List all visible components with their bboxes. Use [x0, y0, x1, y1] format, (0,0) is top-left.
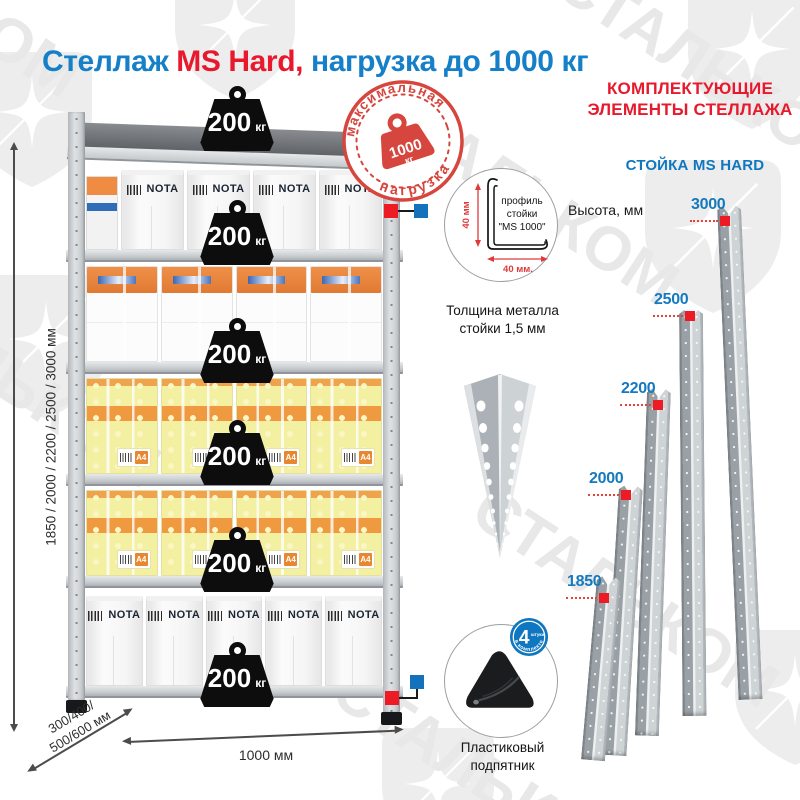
paper-pack-box: A4 [310, 378, 382, 474]
components-heading: КОМПЛЕКТУЮЩИЕЭЛЕМЕНТЫ СТЕЛЛАЖА [580, 78, 800, 121]
a4-label: A4 [118, 449, 150, 466]
foot-marker-blue-square [410, 675, 424, 689]
profile-dim-vertical: 40 мм [461, 201, 472, 228]
dotted-leader-line [588, 494, 619, 496]
foot-marker-red-square [385, 691, 399, 705]
height-axis-label: Высота, мм [568, 202, 643, 218]
post-height-value: 3000 [691, 197, 730, 213]
orange-lid-box [310, 266, 382, 362]
brand-label: NOTA [168, 610, 200, 621]
a4-badge: A4 [359, 451, 372, 464]
post-height-label-3000: 3000 [690, 197, 730, 226]
post-height-value: 2200 [621, 381, 663, 397]
box-label [248, 276, 286, 284]
load-unit: кг [255, 454, 266, 468]
barcode-icon [148, 611, 163, 621]
badge-word: штуки [531, 632, 545, 637]
box-lid [87, 267, 157, 293]
load-unit: кг [255, 561, 266, 575]
red-square-marker [653, 400, 663, 410]
foot-marker-connector-v [416, 688, 418, 699]
weight-body-icon: 200кг [198, 433, 276, 485]
box-lid [311, 267, 381, 293]
barcode-icon [259, 185, 274, 195]
count-badge: 4 штуки в комплекте [509, 617, 549, 657]
shelf-load-weight: 200кг [198, 642, 276, 708]
barcode-icon [268, 611, 283, 621]
a4-label: A4 [342, 551, 374, 568]
barcode-icon [208, 611, 223, 621]
a4-label: A4 [342, 449, 374, 466]
plastic-foot-right [381, 712, 402, 725]
load-value: 200 [208, 443, 251, 469]
box-lid [237, 267, 307, 293]
components-heading-line2: ЭЛЕМЕНТЫ СТЕЛЛАЖА [588, 100, 793, 119]
brand-label: NOTA [147, 184, 179, 195]
thickness-line2: стойки 1,5 мм [459, 321, 545, 336]
brand-label: NOTA [288, 610, 320, 621]
thickness-line1: Толщина металла [446, 303, 559, 318]
a4-badge: A4 [135, 553, 148, 566]
weight-body-icon: 200кг [198, 213, 276, 265]
frame-post-right [383, 144, 400, 712]
box-label [98, 276, 136, 284]
post-height-value: 2000 [589, 471, 631, 487]
box-label [322, 276, 360, 284]
barcode-icon [127, 185, 142, 195]
load-value: 200 [208, 223, 251, 249]
red-square-marker [720, 216, 730, 226]
brand-label: NOTA [348, 610, 380, 621]
weight-body-icon: 200кг [198, 331, 276, 383]
height-dimension-line [13, 146, 15, 728]
box-lid [162, 267, 232, 293]
post-height-label-2000: 2000 [588, 471, 631, 500]
post-height-label-2200: 2200 [620, 381, 663, 410]
corner-post-image [452, 366, 548, 562]
paper-pack-box: A4 [86, 490, 158, 576]
title-part-1: Стеллаж [42, 45, 176, 78]
orange-lid-box [86, 266, 158, 362]
profile-callout-line3: "MS 1000" [498, 222, 546, 233]
red-square-marker [621, 490, 631, 500]
load-unit: кг [255, 120, 266, 134]
post-height-label-1850: 1850 [566, 574, 609, 603]
load-unit: кг [255, 352, 266, 366]
dotted-leader-line [690, 220, 718, 222]
post-height-value: 2500 [654, 292, 695, 308]
page-title: Стеллаж MS Hard, нагрузка до 1000 кг [42, 45, 588, 79]
brand-label: NOTA [279, 184, 311, 195]
box-label [173, 276, 211, 284]
a4-label: A4 [118, 551, 150, 568]
frame-post-left [68, 112, 85, 700]
product-infographic: СТАЛЬКОМ СТАЛЬКОМ СТАЛЬКОМ СТАЛЬКОМ СТАЛ… [0, 0, 800, 800]
weight-body-icon: 200кг [198, 540, 276, 592]
nota-box: NOTA [146, 596, 203, 686]
red-square-marker [685, 311, 695, 321]
brand-label: NOTA [213, 184, 245, 195]
a4-badge: A4 [284, 451, 297, 464]
thickness-caption: Толщина металластойки 1,5 мм [430, 302, 575, 338]
barcode-icon [88, 611, 103, 621]
profile-dim-horizontal: 40 мм. [503, 264, 533, 275]
nota-box: NOTA [121, 170, 184, 250]
brand-label: NOTA [108, 610, 140, 621]
nota-box: NOTA [325, 596, 382, 686]
post-height-label-2500: 2500 [653, 292, 695, 321]
dotted-leader-line [653, 315, 683, 317]
shelf-load-weight: 200кг [198, 86, 276, 152]
box-flap-line [87, 322, 157, 323]
barcode-icon [325, 185, 340, 195]
red-square-marker [599, 593, 609, 603]
load-value: 200 [208, 109, 251, 135]
paper-pack-box: A4 [310, 490, 382, 576]
profile-marker-blue-square [414, 204, 428, 218]
profile-callout-line2: стойки [507, 209, 538, 220]
box-flap-line [311, 322, 381, 323]
load-value: 200 [208, 341, 251, 367]
load-unit: кг [255, 676, 266, 690]
title-part-model: MS Hard, [176, 45, 303, 78]
barcode-icon [328, 611, 343, 621]
load-unit: кг [255, 234, 266, 248]
load-value: 200 [208, 665, 251, 691]
a4-badge: A4 [284, 553, 297, 566]
a4-badge: A4 [359, 553, 372, 566]
width-dimension-label: 1000 мм [196, 747, 336, 763]
rack-illustration: NOTA NOTA NOTA NOTA [60, 108, 405, 758]
shelf-load-weight: 200кг [198, 420, 276, 486]
weight-body-icon: 200кг [198, 655, 276, 707]
stand-subheading: СТОЙКА MS HARD [600, 157, 790, 174]
nota-box: NOTA [86, 596, 143, 686]
dotted-leader-line [620, 404, 651, 406]
side-box [86, 176, 118, 250]
foot-caption: Пластиковыйподпятник [430, 739, 575, 775]
shelf-load-weight: 200кг [198, 527, 276, 593]
components-heading-line1: КОМПЛЕКТУЮЩИЕ [607, 79, 773, 98]
weight-body-icon: 200кг [198, 99, 276, 151]
shelf-load-weight: 200кг [198, 200, 276, 266]
shelf-load-weight: 200кг [198, 318, 276, 384]
profile-callout-line1: профиль [501, 195, 542, 207]
foot-caption-line1: Пластиковый [461, 740, 545, 755]
post-height-value: 1850 [567, 574, 609, 590]
stand-post-2500 [679, 310, 707, 716]
load-value: 200 [208, 550, 251, 576]
dotted-leader-line [566, 597, 597, 599]
a4-badge: A4 [135, 451, 148, 464]
barcode-icon [193, 185, 208, 195]
paper-pack-box: A4 [86, 378, 158, 474]
height-dimension-label: 1850 / 2000 / 2200 / 2500 / 3000 мм [44, 328, 59, 545]
brand-label: NOTA [228, 610, 260, 621]
foot-caption-line2: подпятник [470, 758, 534, 773]
